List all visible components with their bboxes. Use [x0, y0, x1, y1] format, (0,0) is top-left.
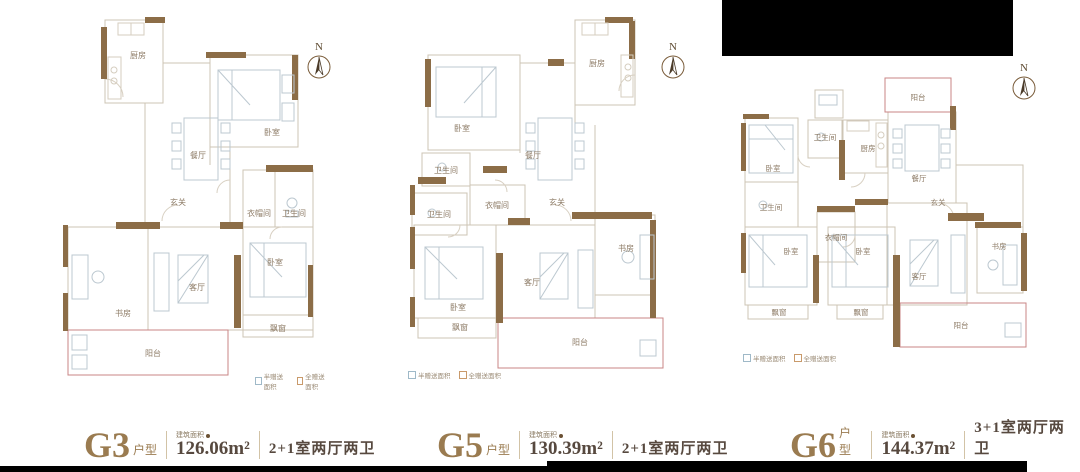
- room-label-cloakroom: 衣帽间: [247, 208, 271, 218]
- legend: 半赠送面积 全赠送面积: [743, 353, 836, 363]
- divider: [259, 431, 260, 459]
- legend-label: 全赠送面积: [804, 353, 837, 363]
- room-label-kitchen: 厨房: [861, 143, 876, 153]
- plan-name: G3 户型: [84, 431, 157, 459]
- room-label-bathroom-b: 卫生间: [427, 209, 451, 219]
- room-label-entry: 玄关: [170, 197, 186, 207]
- room-label-living: 客厅: [189, 282, 205, 292]
- compass-icon: [306, 54, 332, 80]
- plan-id-suffix: 户型: [486, 441, 510, 458]
- wall-lines: [412, 20, 655, 338]
- plan-area: 建筑面积 144.37m²: [881, 432, 955, 459]
- legend-swatch-blue: [255, 377, 262, 385]
- black-redaction-box-top: [722, 0, 1013, 56]
- legend-label: 半赠送面积: [418, 370, 451, 380]
- floorplan-g3-drawing: 厨房 卧室 餐厅 玄关 衣帽间 卫生间 书房 客厅 卧室 飘窗 阳台: [60, 15, 330, 400]
- room-label-bedroom-a: 卧室: [454, 123, 470, 133]
- room-label-entry: 玄关: [549, 197, 565, 207]
- room-label-bedroom-a: 卧室: [766, 163, 781, 173]
- floorplan-g3: 厨房 卧室 餐厅 玄关 衣帽间 卫生间 书房 客厅 卧室 飘窗 阳台 N 半赠送: [60, 15, 330, 400]
- divider: [519, 431, 520, 459]
- room-label-balcony-top: 阳台: [911, 92, 926, 102]
- floorplan-g6-drawing: 阳台 卫生间 厨房 卧室 餐厅 卫生间 玄关 衣帽间 卧室 卧室 书房 客厅 飘…: [735, 55, 1065, 380]
- room-label-kitchen: 厨房: [130, 50, 146, 60]
- legend-item: 全赠送面积: [459, 370, 502, 380]
- divider: [612, 431, 613, 459]
- compass: N: [656, 42, 690, 80]
- legend-label: 半赠送面积: [753, 353, 786, 363]
- room-label-cloakroom: 衣帽间: [825, 232, 848, 242]
- plan-id: G3: [84, 431, 130, 459]
- room-label-balcony: 阳台: [572, 337, 588, 347]
- plan-name: G6 户型: [790, 424, 862, 459]
- room-label-living: 客厅: [524, 277, 540, 287]
- room-label-bathroom-a: 卫生间: [282, 208, 306, 218]
- compass-n-label: N: [1020, 63, 1028, 74]
- room-label-bedroom-b: 卧室: [784, 246, 799, 256]
- legend-item: 全赠送面积: [794, 353, 837, 363]
- title-block-g3: G3 户型 建筑面积 126.06m² 2+1室两厅两卫: [84, 425, 375, 459]
- divider: [964, 431, 965, 459]
- room-label-bathroom-b: 卫生间: [760, 202, 783, 212]
- compass-icon: [660, 54, 686, 80]
- room-label-bedroom-a: 卧室: [264, 127, 280, 137]
- room-label-bedroom-b: 卧室: [267, 257, 283, 267]
- legend: 半赠送面积 全赠送面积: [255, 371, 330, 391]
- room-labels: 阳台 卫生间 厨房 卧室 餐厅 卫生间 玄关 衣帽间 卧室 卧室 书房 客厅 飘…: [760, 92, 1007, 330]
- fixtures: [108, 23, 144, 99]
- legend-item: 半赠送面积: [408, 370, 451, 380]
- dot-icon: [911, 434, 915, 438]
- room-label-bedroom-b: 卧室: [450, 302, 466, 312]
- room-label-dining: 餐厅: [912, 174, 927, 183]
- room-label-dining: 餐厅: [190, 151, 206, 160]
- area-value: 130.39m²: [529, 439, 603, 459]
- room-label-bedroom-c: 卧室: [856, 246, 871, 256]
- divider: [166, 431, 167, 459]
- floorplan-sheet: 厨房 卧室 餐厅 玄关 衣帽间 卫生间 书房 客厅 卧室 飘窗 阳台 N 半赠送: [0, 0, 1080, 472]
- room-labels: 厨房 卧室 餐厅 卫生间 衣帽间 卫生间 玄关 书房 客厅 卧室 飘窗 阳台: [427, 58, 634, 347]
- room-label-bathroom-a: 卫生间: [434, 165, 458, 175]
- black-bar-bottom-right: [547, 461, 1027, 472]
- plan-id-suffix: 户型: [839, 424, 862, 458]
- compass: N: [1007, 63, 1041, 101]
- title-block-g5: G5 户型 建筑面积 130.39m² 2+1室两厅两卫: [437, 425, 728, 459]
- legend-swatch-orange: [297, 377, 304, 385]
- plan-name: G5 户型: [437, 431, 510, 459]
- room-label-cloakroom: 衣帽间: [485, 200, 509, 210]
- legend-label: 半赠送面积: [264, 371, 289, 391]
- divider: [871, 431, 872, 459]
- plan-layout-text: 2+1室两厅两卫: [269, 437, 376, 458]
- title-block-g6: G6 户型 建筑面积 144.37m² 3+1室两厅两卫: [790, 425, 1080, 459]
- area-value: 144.37m²: [881, 439, 955, 459]
- room-label-bay-window: 飘窗: [270, 323, 286, 333]
- legend-label: 全赠送面积: [305, 371, 330, 391]
- room-label-bay-window: 飘窗: [452, 322, 468, 332]
- legend-swatch-blue: [743, 354, 751, 362]
- legend-swatch-blue: [408, 371, 416, 379]
- room-label-study: 书房: [115, 308, 131, 318]
- room-label-bay-window-b: 飘窗: [854, 307, 869, 317]
- floorplan-g6: 阳台 卫生间 厨房 卧室 餐厅 卫生间 玄关 衣帽间 卧室 卧室 书房 客厅 飘…: [735, 55, 1065, 380]
- compass-icon: [1011, 75, 1037, 101]
- room-label-kitchen: 厨房: [589, 58, 605, 68]
- room-label-study: 书房: [992, 241, 1007, 251]
- dot-icon: [559, 434, 563, 438]
- plan-area: 建筑面积 130.39m²: [529, 432, 603, 459]
- plan-layout-text: 2+1室两厅两卫: [622, 437, 729, 458]
- floorplan-g5-drawing: 厨房 卧室 餐厅 卫生间 衣帽间 卫生间 玄关 书房 客厅 卧室 飘窗 阳台: [400, 15, 700, 395]
- room-label-living: 客厅: [912, 271, 927, 281]
- plan-id: G6: [790, 431, 836, 459]
- legend-item: 半赠送面积: [743, 353, 786, 363]
- legend-swatch-orange: [794, 354, 802, 362]
- furniture: [425, 67, 656, 356]
- plan-id: G5: [437, 431, 483, 459]
- legend-item: 全赠送面积: [297, 371, 331, 391]
- floorplan-g5: 厨房 卧室 餐厅 卫生间 衣帽间 卫生间 玄关 书房 客厅 卧室 飘窗 阳台 N: [400, 15, 700, 395]
- plan-id-suffix: 户型: [133, 441, 157, 458]
- legend: 半赠送面积 全赠送面积: [408, 370, 501, 380]
- room-label-study: 书房: [618, 243, 634, 253]
- legend-label: 全赠送面积: [469, 370, 502, 380]
- room-label-balcony-bottom: 阳台: [954, 320, 969, 330]
- dot-icon: [206, 434, 210, 438]
- compass-n-label: N: [315, 42, 323, 53]
- plan-layout-text: 3+1室两厅两卫: [974, 416, 1080, 458]
- legend-swatch-orange: [459, 371, 467, 379]
- compass-n-label: N: [669, 42, 677, 53]
- room-label-bay-window-a: 飘窗: [772, 307, 787, 317]
- room-label-dining: 餐厅: [525, 151, 541, 160]
- plan-area: 建筑面积 126.06m²: [176, 432, 250, 459]
- compass: N: [302, 42, 336, 80]
- room-label-entry: 玄关: [931, 197, 946, 207]
- room-label-balcony: 阳台: [145, 348, 161, 358]
- legend-item: 半赠送面积: [255, 371, 289, 391]
- room-label-bathroom-a: 卫生间: [814, 132, 837, 142]
- area-value: 126.06m²: [176, 439, 250, 459]
